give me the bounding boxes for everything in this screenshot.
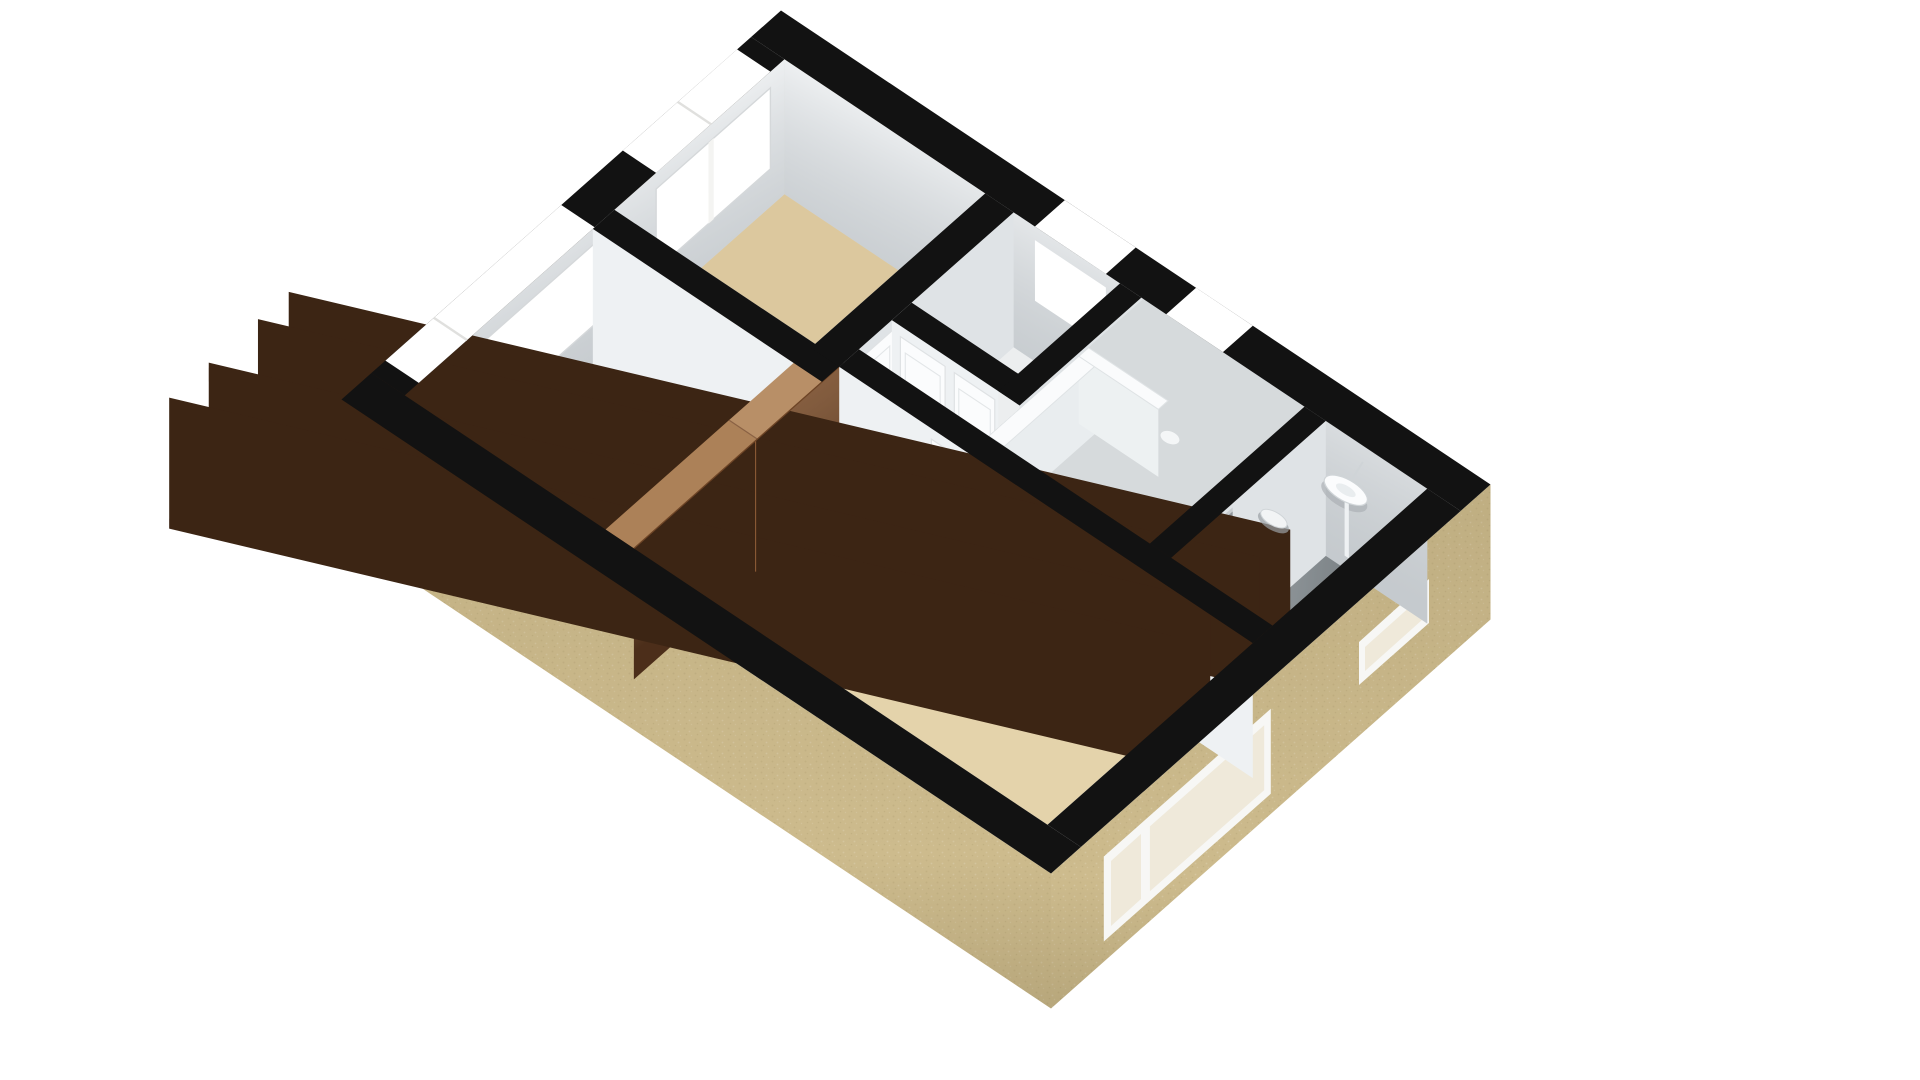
floorplan-3d-render [0,0,1920,1080]
floorplan-canvas [0,0,1920,1080]
